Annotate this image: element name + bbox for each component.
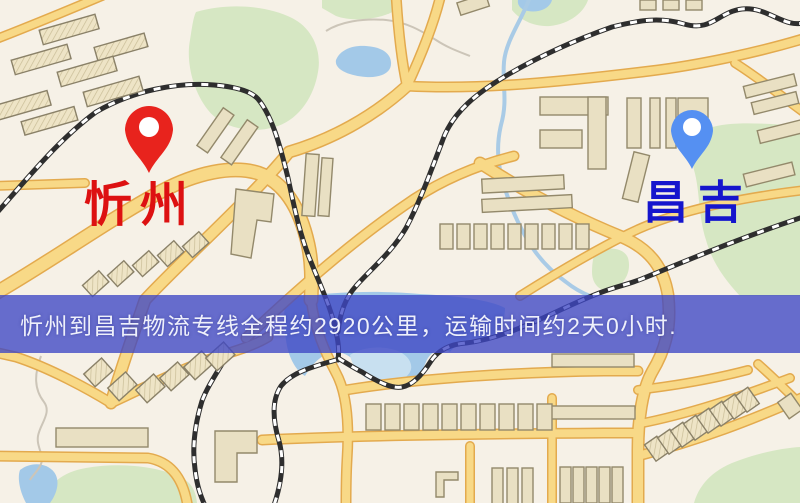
origin-label: 忻州 <box>84 179 196 232</box>
destination-label: 昌吉 <box>643 178 753 228</box>
origin-pin-hole <box>139 117 159 137</box>
map-canvas[interactable]: 忻州 昌吉 忻州到昌吉物流专线全程约2920公里，运输时间约2天0小时. <box>0 0 800 503</box>
map-graphics: 忻州 昌吉 <box>0 0 800 503</box>
route-info-banner: 忻州到昌吉物流专线全程约2920公里，运输时间约2天0小时. <box>0 295 800 353</box>
destination-pin-hole <box>683 118 701 136</box>
route-info-text: 忻州到昌吉物流专线全程约2920公里，运输时间约2天0小时. <box>20 307 677 341</box>
